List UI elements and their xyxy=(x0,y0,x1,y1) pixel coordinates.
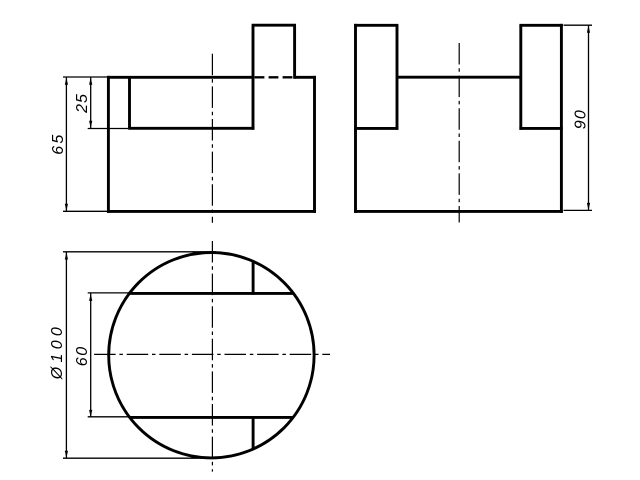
svg-text:25: 25 xyxy=(74,94,91,114)
svg-text:90: 90 xyxy=(573,110,590,129)
svg-text:60: 60 xyxy=(74,347,91,366)
svg-text:65: 65 xyxy=(50,135,67,155)
svg-text:Ø100: Ø100 xyxy=(49,327,66,380)
